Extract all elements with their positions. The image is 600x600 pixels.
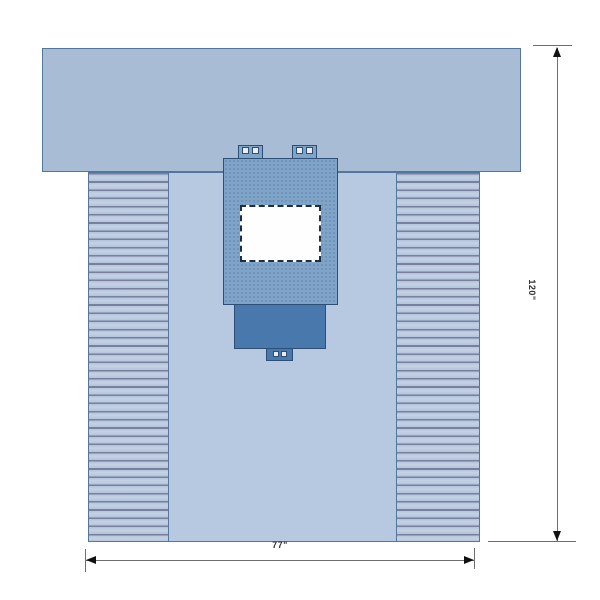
reinforcement-panel	[223, 158, 338, 305]
fenestration-window	[240, 205, 321, 262]
drape-diagram: 120" 77"	[0, 0, 600, 600]
width-dimension-tick-right	[474, 548, 475, 569]
pouch-tab-slot	[281, 351, 287, 357]
fluid-collection-pouch	[234, 301, 326, 349]
height-dimension-tick-top	[533, 45, 572, 46]
height-dimension-tick-bottom	[488, 541, 576, 542]
pleated-panel-right	[396, 173, 479, 541]
arrowhead-up-icon	[553, 47, 561, 57]
arrowhead-right-icon	[464, 556, 474, 564]
tube-holder-slot	[296, 147, 303, 154]
pouch-tab	[266, 348, 293, 361]
tube-holder-slot	[252, 147, 259, 154]
arrowhead-left-icon	[86, 556, 96, 564]
pleated-panel-left	[89, 173, 169, 541]
height-dimension-label: 120"	[526, 268, 538, 312]
tube-holder-tab-left	[238, 145, 263, 159]
tube-holder-slot	[306, 147, 313, 154]
drape-top-panel	[42, 48, 521, 172]
height-dimension-line	[557, 48, 558, 542]
width-dimension-label: 77"	[255, 539, 305, 551]
tube-holder-slot	[242, 147, 249, 154]
width-dimension-line	[85, 560, 475, 561]
tube-holder-tab-right	[292, 145, 317, 159]
arrowhead-down-icon	[553, 531, 561, 541]
pouch-tab-slot	[273, 351, 279, 357]
